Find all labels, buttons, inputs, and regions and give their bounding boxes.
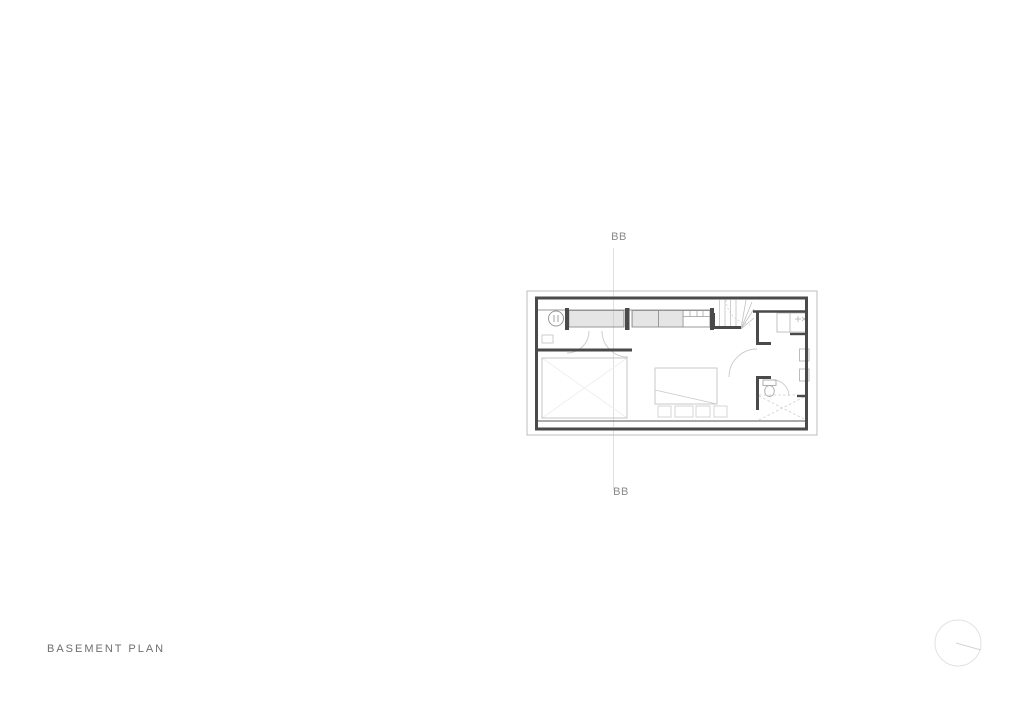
shower-area	[759, 395, 806, 420]
bed	[655, 368, 717, 404]
washer-drum-symbol	[549, 311, 564, 326]
drawing-sheet: BB BB BASEMENT PLAN	[0, 0, 1024, 724]
utility-fixture	[542, 335, 553, 343]
storage-room	[542, 358, 627, 418]
toilet	[763, 380, 776, 397]
bench-cushions	[658, 406, 727, 417]
vanity-counter-sink	[777, 313, 806, 332]
winder-stair	[720, 300, 755, 329]
door-swing-arcs	[567, 331, 789, 396]
north-circle-icon	[935, 620, 981, 666]
section-marker-bb-top: BB	[602, 231, 636, 243]
basement-floor-plan	[0, 0, 1024, 724]
section-marker-bb-bottom: BB	[604, 486, 638, 498]
page-title: BASEMENT PLAN	[47, 643, 165, 655]
